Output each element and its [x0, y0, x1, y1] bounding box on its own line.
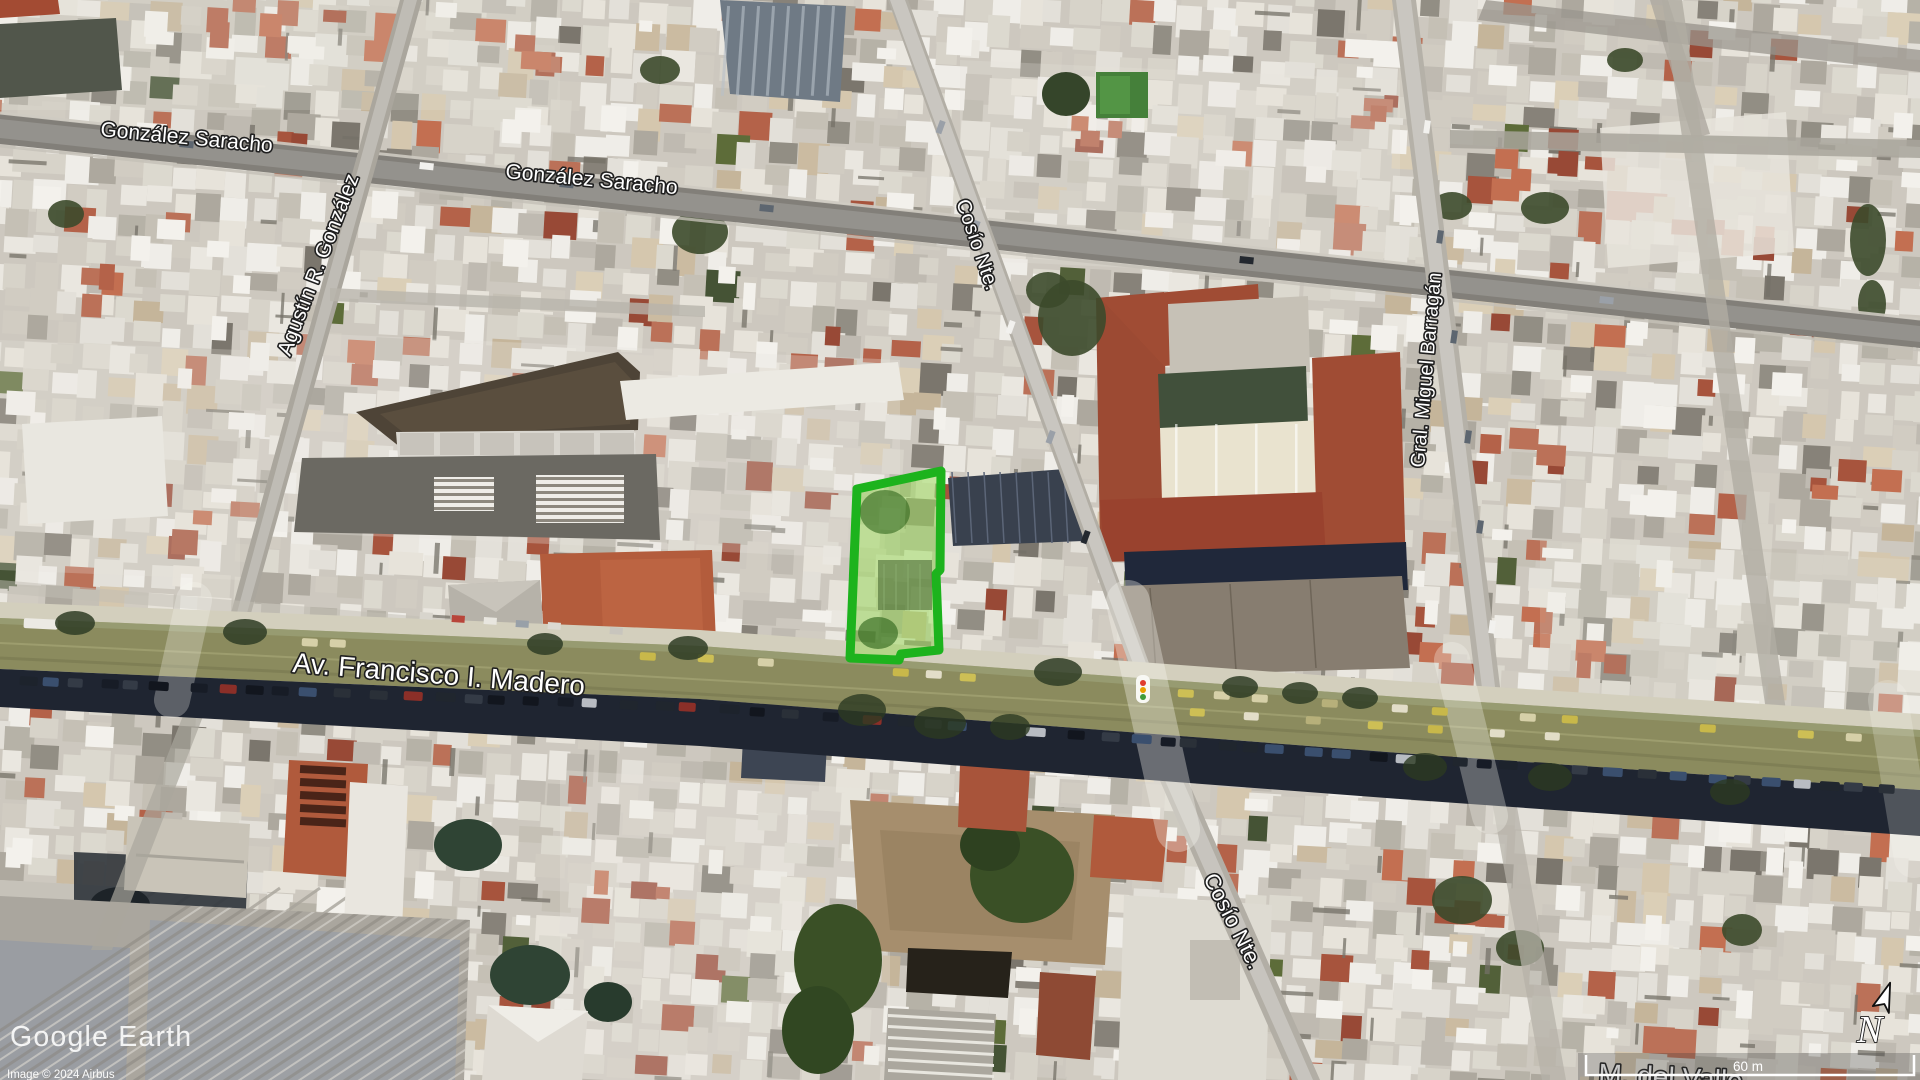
svg-text:Image © 2024 Airbus: Image © 2024 Airbus [7, 1069, 115, 1080]
svg-text:N: N [1856, 1009, 1885, 1051]
svg-text:60 m: 60 m [1733, 1059, 1763, 1074]
svg-text:Google Earth: Google Earth [10, 1021, 192, 1053]
